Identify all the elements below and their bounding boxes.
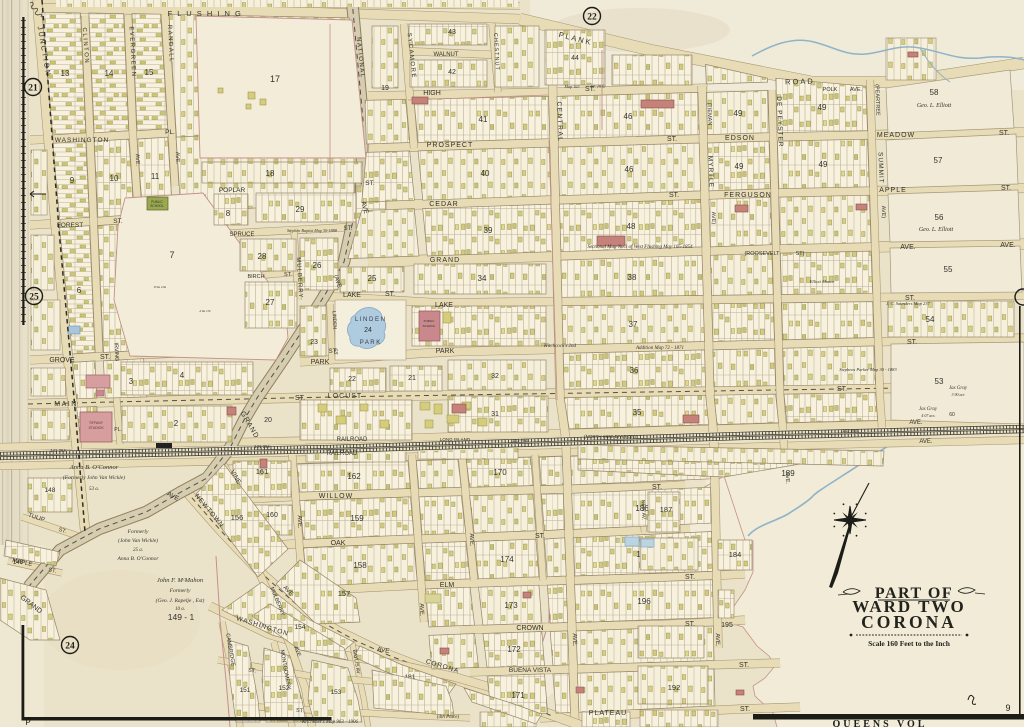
- svg-text:ST.: ST.: [113, 218, 123, 225]
- svg-text:Jas Gray: Jas Gray: [919, 407, 938, 412]
- svg-text:141-264: 141-264: [254, 444, 270, 449]
- svg-text:PROSPECT: PROSPECT: [427, 142, 474, 149]
- svg-text:GROVE: GROVE: [49, 357, 75, 364]
- svg-text:CEDAR: CEDAR: [429, 201, 459, 208]
- svg-text:154: 154: [295, 624, 306, 631]
- svg-text:158: 158: [353, 561, 367, 570]
- svg-text:57: 57: [934, 156, 943, 165]
- svg-text:ST.: ST.: [907, 339, 917, 346]
- svg-text:25 a.: 25 a.: [133, 548, 143, 553]
- svg-text:LOCUST: LOCUST: [328, 393, 362, 400]
- svg-text:PARK: PARK: [436, 348, 455, 355]
- svg-text:STUDIOS: STUDIOS: [88, 426, 104, 430]
- svg-text:173: 173: [504, 601, 518, 610]
- svg-text:CORONA: CORONA: [861, 612, 957, 632]
- svg-text:15: 15: [145, 68, 154, 77]
- svg-text:2: 2: [174, 419, 179, 428]
- svg-text:18: 18: [266, 169, 275, 178]
- svg-text:35: 35: [633, 408, 642, 417]
- svg-text:AVE.: AVE.: [296, 515, 302, 529]
- svg-text:31: 31: [491, 411, 499, 418]
- svg-text:IRVING: IRVING: [113, 342, 120, 361]
- svg-text:ST.: ST.: [669, 192, 679, 199]
- svg-text:(Formerly John Van Wickle): (Formerly John Van Wickle): [63, 474, 125, 481]
- svg-text:AVE.: AVE.: [919, 439, 933, 445]
- svg-text:46: 46: [625, 165, 634, 174]
- svg-text:ELM: ELM: [440, 582, 455, 589]
- svg-text:162: 162: [347, 472, 361, 481]
- svg-text:AVE.: AVE.: [900, 244, 915, 251]
- svg-text:ST.: ST.: [295, 395, 305, 402]
- svg-text:LAKE: LAKE: [343, 292, 361, 299]
- svg-text:4 9a 15c: 4 9a 15c: [199, 309, 212, 313]
- svg-text:149 - 1: 149 - 1: [168, 612, 195, 622]
- svg-text:22: 22: [587, 13, 597, 23]
- svg-text:ST. 1910: ST. 1910: [591, 84, 606, 89]
- svg-text:RAILROAD: RAILROAD: [337, 437, 368, 443]
- svg-text:MAIN: MAIN: [54, 401, 78, 408]
- svg-text:ST.: ST.: [100, 354, 110, 361]
- svg-text:ST.: ST.: [999, 130, 1009, 137]
- svg-text:151: 151: [240, 687, 251, 694]
- svg-text:CROWN: CROWN: [516, 625, 543, 632]
- svg-text:ST): ST): [796, 251, 805, 257]
- svg-text:RAILROAD: RAILROAD: [327, 451, 358, 457]
- svg-text:9: 9: [70, 176, 75, 185]
- svg-text:6: 6: [77, 286, 82, 295]
- svg-text:Formerly: Formerly: [169, 588, 191, 594]
- svg-text:Anna B. O'Connor: Anna B. O'Connor: [116, 556, 159, 562]
- svg-text:24: 24: [364, 327, 372, 334]
- svg-text:AVE.: AVE.: [784, 472, 790, 485]
- svg-text:ST.: ST.: [248, 667, 257, 674]
- svg-text:Kitchener's Map 963 - 1906: Kitchener's Map 963 - 1906: [301, 720, 359, 725]
- svg-text:SCHOOL: SCHOOL: [423, 324, 436, 328]
- svg-text:WALNUT: WALNUT: [433, 52, 458, 58]
- svg-text:NEW AV.: NEW AV.: [640, 500, 647, 520]
- svg-text:AVE): AVE): [880, 206, 886, 219]
- svg-text:HIGH: HIGH: [423, 90, 441, 97]
- svg-text:17: 17: [270, 74, 280, 84]
- svg-text:60: 60: [949, 412, 955, 418]
- svg-text:29: 29: [296, 205, 305, 214]
- svg-text:159: 159: [350, 514, 364, 523]
- svg-text:53: 53: [935, 377, 944, 386]
- svg-text:187: 187: [660, 505, 673, 514]
- svg-text:P: P: [25, 718, 30, 727]
- svg-text:AVE.: AVE.: [174, 152, 180, 165]
- svg-text:ST.: ST.: [837, 386, 847, 393]
- svg-text:GRAND: GRAND: [430, 257, 460, 264]
- svg-text:MEADOW: MEADOW: [877, 132, 915, 139]
- svg-text:POPLAR: POPLAR: [219, 187, 246, 194]
- svg-text:34: 34: [478, 274, 487, 283]
- svg-text:Jas Gray: Jas Gray: [949, 386, 968, 391]
- svg-text:174: 174: [500, 555, 514, 564]
- svg-text:Stephens Parker Map 30: Stephens Parker Map 30 - 1883: [839, 367, 897, 372]
- svg-text:(TIEMAN: (TIEMAN: [706, 103, 713, 126]
- svg-text:PL.: PL.: [165, 129, 175, 136]
- svg-text:49: 49: [735, 162, 744, 171]
- svg-text:ST.: ST.: [296, 708, 305, 715]
- svg-text:ST.: ST.: [685, 574, 695, 581]
- svg-text:SCHOOL: SCHOOL: [150, 204, 164, 208]
- svg-text:Sectional Map No.3 of West Flu: Sectional Map No.3 of West Flushing May …: [587, 245, 693, 250]
- svg-text:58: 58: [930, 88, 939, 97]
- svg-text:56: 56: [935, 213, 944, 222]
- svg-text:CENTRAL: CENTRAL: [555, 101, 563, 142]
- svg-text:ST.: ST.: [685, 621, 695, 628]
- svg-text:POLK: POLK: [823, 87, 838, 93]
- svg-text:38: 38: [628, 273, 637, 282]
- svg-text:BUENA VISTA: BUENA VISTA: [509, 667, 552, 674]
- svg-text:3 90 act: 3 90 act: [952, 392, 966, 397]
- svg-text:AVE.: AVE.: [850, 87, 863, 93]
- svg-text:FERGUSON: FERGUSON: [724, 192, 772, 199]
- svg-text:141-784: 141-784: [512, 438, 528, 443]
- svg-text:21: 21: [408, 375, 416, 382]
- svg-text:ST.: ST.: [385, 291, 395, 298]
- svg-text:23: 23: [310, 339, 318, 346]
- svg-text:14: 14: [105, 69, 114, 78]
- svg-text:160: 160: [266, 512, 278, 519]
- svg-text:AVE.: AVE.: [134, 154, 140, 167]
- svg-text:AVE.: AVE.: [1000, 242, 1015, 249]
- svg-text:19: 19: [381, 85, 389, 92]
- svg-text:3: 3: [129, 377, 134, 386]
- svg-text:EDSON: EDSON: [725, 135, 755, 142]
- svg-text:Addition Map 72 - 1871: Addition Map 72 - 1871: [635, 346, 684, 351]
- svg-text:Stephen Baptist Map 30-1888: Stephen Baptist Map 30-1888: [287, 228, 338, 233]
- svg-text:8: 8: [226, 209, 231, 218]
- svg-text:AVE.: AVE.: [714, 633, 720, 647]
- svg-text:48: 48: [627, 222, 636, 231]
- svg-text:8 9a 10a: 8 9a 10a: [154, 285, 167, 289]
- svg-text:Hitchcock's 2nd: Hitchcock's 2nd: [543, 344, 577, 349]
- svg-text:ST.: ST.: [344, 226, 353, 232]
- svg-text:184: 184: [729, 550, 742, 559]
- svg-text:(Geo. J. Rapelje , Est): (Geo. J. Rapelje , Est): [156, 597, 205, 604]
- svg-text:ST.: ST.: [740, 706, 750, 713]
- svg-text:APPLE: APPLE: [879, 187, 907, 194]
- svg-text:46: 46: [624, 112, 633, 121]
- svg-text:13: 13: [61, 69, 70, 78]
- svg-text:20: 20: [264, 417, 272, 424]
- svg-text:LAKE: LAKE: [435, 302, 453, 309]
- svg-text:170: 170: [493, 468, 507, 477]
- svg-text:Geo. L. Elliott: Geo. L. Elliott: [919, 227, 954, 233]
- svg-text:172: 172: [507, 645, 521, 654]
- svg-text:MYRTLE: MYRTLE: [706, 156, 714, 188]
- svg-text:WASHINGTON: WASHINGTON: [55, 137, 109, 144]
- svg-text:55: 55: [944, 265, 953, 274]
- svg-text:Formerly: Formerly: [127, 529, 149, 535]
- svg-text:4 07 acs: 4 07 acs: [921, 413, 935, 418]
- svg-text:ST.: ST.: [284, 272, 292, 278]
- svg-text:LONG ISLAND: LONG ISLAND: [440, 437, 471, 442]
- svg-text:AVE.: AVE.: [468, 533, 474, 547]
- svg-text:PL.: PL.: [114, 427, 122, 433]
- svg-text:24: 24: [65, 642, 75, 652]
- svg-text:Elliott Manor: Elliott Manor: [809, 279, 835, 284]
- svg-text:161: 161: [256, 467, 269, 476]
- svg-text:AVE.: AVE.: [909, 420, 923, 426]
- svg-text:32: 32: [491, 373, 499, 380]
- svg-text:41: 41: [479, 115, 488, 124]
- svg-text:ST.: ST.: [365, 180, 375, 187]
- svg-text:148: 148: [45, 487, 56, 494]
- svg-text:153: 153: [331, 689, 342, 696]
- svg-text:196: 196: [637, 597, 651, 606]
- svg-text:AVE.: AVE.: [418, 603, 424, 617]
- svg-text:27: 27: [266, 298, 275, 307]
- svg-text:Geo. L. Elliott: Geo. L. Elliott: [917, 103, 952, 109]
- svg-text:192: 192: [668, 683, 681, 692]
- svg-text:7: 7: [169, 250, 174, 260]
- svg-text:PLATEAU: PLATEAU: [589, 710, 627, 717]
- svg-text:40: 40: [481, 169, 490, 178]
- svg-text:J. C. Saunders Map 237: J. C. Saunders Map 237: [886, 301, 930, 306]
- svg-text:ST.: ST.: [332, 348, 338, 355]
- svg-text:(ROOSEVELT: (ROOSEVELT: [744, 251, 780, 257]
- svg-text:10: 10: [110, 174, 119, 183]
- svg-text:195: 195: [721, 622, 733, 629]
- svg-text:SUMMIT: SUMMIT: [876, 152, 884, 184]
- svg-text:SPRUCE: SPRUCE: [229, 232, 254, 238]
- svg-text:QUEENS VOL: QUEENS VOL: [833, 719, 928, 727]
- svg-text:John F. MᶜMahon: John F. MᶜMahon: [157, 577, 203, 584]
- svg-text:53 a.: 53 a.: [89, 487, 99, 492]
- svg-text:P A R K: P A R K: [360, 340, 381, 346]
- svg-text:28: 28: [258, 252, 267, 261]
- svg-text:21: 21: [28, 84, 38, 94]
- svg-text:L I N D E N: L I N D E N: [355, 317, 385, 323]
- svg-text:157: 157: [338, 589, 351, 598]
- svg-text:25: 25: [368, 274, 377, 283]
- svg-text:171: 171: [511, 691, 525, 700]
- svg-text:LINDEN: LINDEN: [331, 311, 338, 330]
- svg-text:54: 54: [926, 315, 935, 324]
- svg-text:AVE.: AVE.: [571, 633, 577, 647]
- svg-text:141-264: 141-264: [842, 428, 858, 433]
- svg-text:ST.: ST.: [667, 136, 677, 143]
- svg-text:ST.: ST.: [535, 533, 545, 540]
- svg-text:25: 25: [29, 293, 39, 303]
- svg-text:WILLOW: WILLOW: [319, 493, 353, 500]
- svg-text:37: 37: [629, 320, 638, 329]
- svg-text:43: 43: [448, 29, 456, 36]
- svg-text:OAK: OAK: [331, 540, 346, 547]
- svg-text:ST.: ST.: [652, 484, 662, 491]
- svg-text:42: 42: [448, 69, 456, 76]
- svg-text:ST.: ST.: [739, 662, 749, 669]
- svg-text:Anna B. O'Connor: Anna B. O'Connor: [69, 464, 119, 471]
- svg-text:156: 156: [231, 513, 244, 522]
- svg-text:141-264: 141-264: [50, 448, 66, 453]
- svg-text:26: 26: [313, 261, 322, 270]
- svg-text:(4th Place): (4th Place): [437, 715, 460, 720]
- svg-text:BIRCH: BIRCH: [247, 274, 264, 280]
- svg-text:PARK: PARK: [311, 359, 330, 366]
- svg-text:9: 9: [1005, 703, 1010, 713]
- svg-text:(John Van Wickle): (John Van Wickle): [118, 537, 158, 544]
- svg-text:Scale 160 Feet to the Inch: Scale 160 Feet to the Inch: [868, 639, 951, 648]
- svg-text:AVE): AVE): [710, 212, 716, 225]
- svg-text:ROAD: ROAD: [785, 76, 815, 86]
- svg-text:(PEARTREE: (PEARTREE: [873, 84, 880, 116]
- svg-text:4: 4: [180, 371, 185, 380]
- svg-text:49: 49: [818, 103, 827, 112]
- svg-text:TIFFANY: TIFFANY: [89, 421, 104, 425]
- svg-text:FOREST: FOREST: [57, 222, 83, 229]
- svg-text:PUBLIC: PUBLIC: [424, 319, 436, 323]
- svg-text:F L U S H I N G: F L U S H I N G: [168, 9, 243, 18]
- svg-text:49: 49: [819, 160, 828, 169]
- svg-text:ST.: ST.: [1001, 185, 1011, 192]
- svg-text:44: 44: [571, 55, 579, 62]
- svg-text:22: 22: [348, 376, 356, 383]
- svg-text:39: 39: [484, 226, 493, 235]
- svg-text:(NORTH SIDE DIVISION): (NORTH SIDE DIVISION): [584, 434, 636, 439]
- svg-text:36: 36: [630, 366, 639, 375]
- svg-text:Map 163: Map 163: [563, 84, 579, 89]
- svg-text:11: 11: [151, 172, 160, 181]
- svg-text:49: 49: [734, 109, 743, 118]
